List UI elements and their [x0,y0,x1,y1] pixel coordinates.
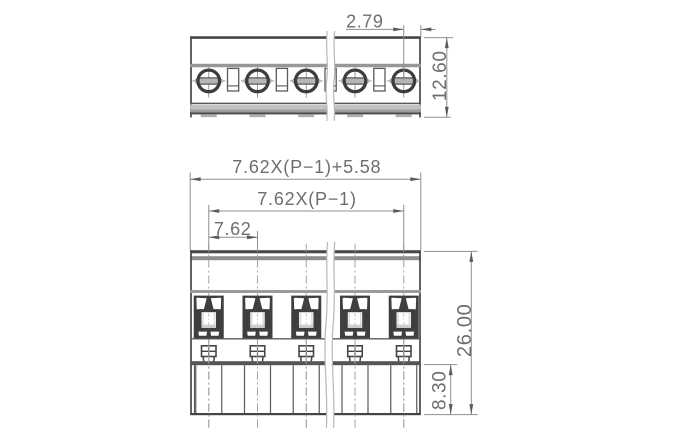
svg-text:7.62X(P−1)+5.58: 7.62X(P−1)+5.58 [232,157,381,177]
svg-text:8.30: 8.30 [429,371,450,410]
svg-text:7.62X(P−1): 7.62X(P−1) [257,189,357,209]
svg-text:12.60: 12.60 [430,51,451,102]
svg-text:2.79: 2.79 [346,11,383,31]
svg-text:7.62: 7.62 [214,219,251,239]
svg-text:26.00: 26.00 [454,304,476,358]
